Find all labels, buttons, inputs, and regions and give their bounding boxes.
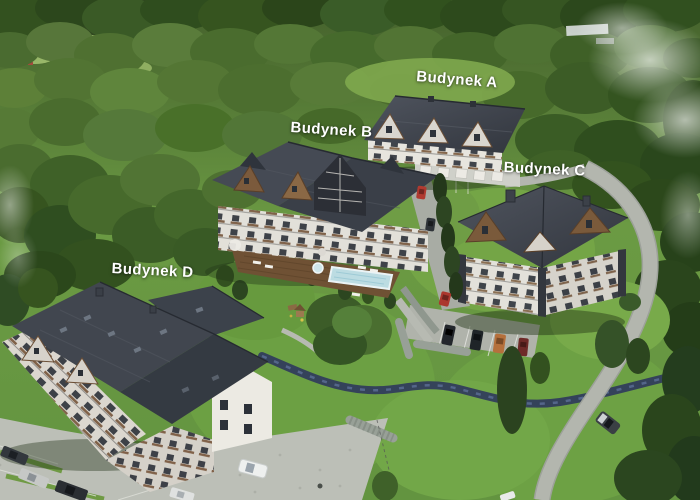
building-label-c: Budynek C: [503, 160, 586, 180]
lamp-post: [318, 484, 323, 489]
aerial-photo: Budynek A Budynek B Budynek C Budynek D: [0, 0, 700, 500]
patio-table: [318, 248, 326, 256]
aerial-photo-rendering: [0, 0, 700, 500]
hot-tub: [313, 263, 323, 273]
car-red-1: [416, 186, 427, 200]
car-dark-1: [425, 218, 436, 232]
patio-umbrella: [229, 239, 241, 251]
